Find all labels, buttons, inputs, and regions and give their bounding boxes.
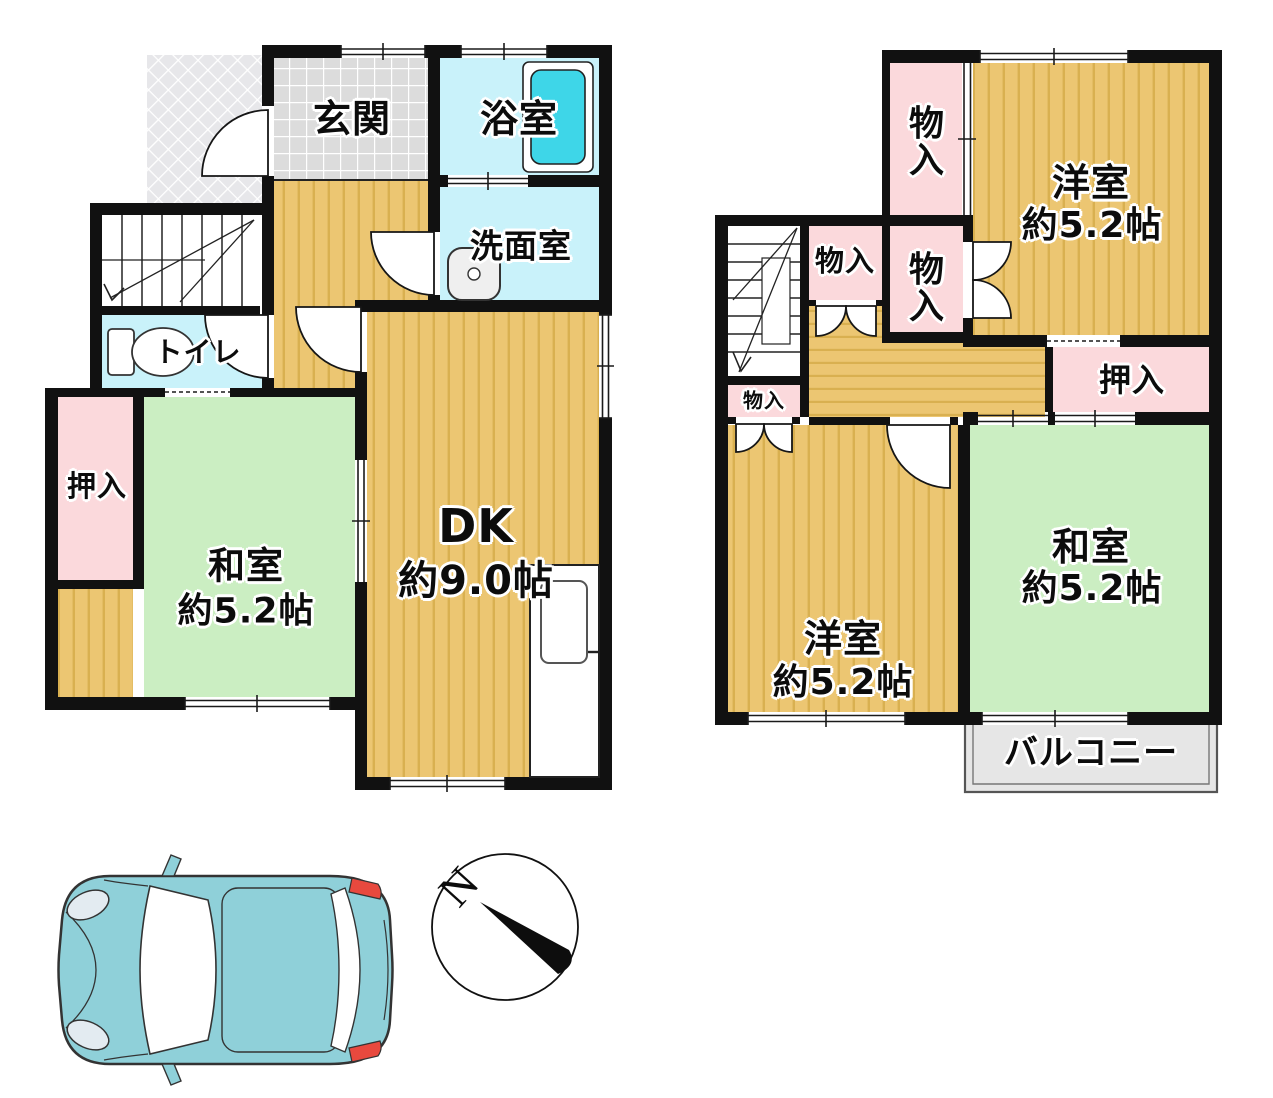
room-label-storage-mid: 物入 — [907, 252, 946, 326]
room-size-yoshitsu-bottom: 約5.2帖 — [773, 664, 914, 702]
room-label-yoshitsu-top: 洋室 — [1052, 164, 1130, 204]
floor1-plan — [45, 43, 614, 792]
car-top-view — [59, 855, 393, 1085]
room-label-oshiire-2f: 押入 — [1099, 364, 1165, 398]
room-label-washitsu-1f: 和室 — [208, 548, 284, 587]
room-label-washitsu-2f: 和室 — [1052, 528, 1130, 568]
room-size-washitsu-2f: 約5.2帖 — [1022, 570, 1163, 608]
toilet-tank-icon — [108, 329, 134, 375]
windshield — [140, 886, 216, 1054]
room-label-storage-top: 物入 — [907, 106, 946, 180]
stairs-2f — [728, 228, 800, 372]
side-mirror — [162, 1064, 181, 1085]
floorplan-canvas: 玄関 浴室 洗面室 トイレ 押入 和室 約5.2帖 DK 約9.0帖 物入 物入… — [0, 0, 1273, 1098]
room-label-washroom: 洗面室 — [470, 230, 572, 265]
room-label-toilet: トイレ — [154, 337, 241, 366]
room-label-entrance: 玄関 — [313, 100, 391, 140]
side-mirror — [162, 855, 181, 876]
room-label-balcony: バルコニー — [1004, 736, 1178, 772]
room-label-bathroom: 浴室 — [480, 100, 558, 140]
room-size-dk: 約9.0帖 — [398, 560, 554, 602]
room-label-dk: DK — [438, 502, 514, 550]
stairs-1f — [102, 215, 254, 306]
room-label-yoshitsu-bottom: 洋室 — [804, 620, 882, 660]
room-size-yoshitsu-top: 約5.2帖 — [1022, 207, 1163, 245]
room-size-washitsu-1f: 約5.2帖 — [177, 594, 314, 631]
room-label-storage-mid-left: 物入 — [815, 246, 875, 276]
room-label-storage-small: 物入 — [743, 391, 785, 412]
room-label-closet-1f: 押入 — [67, 471, 127, 501]
